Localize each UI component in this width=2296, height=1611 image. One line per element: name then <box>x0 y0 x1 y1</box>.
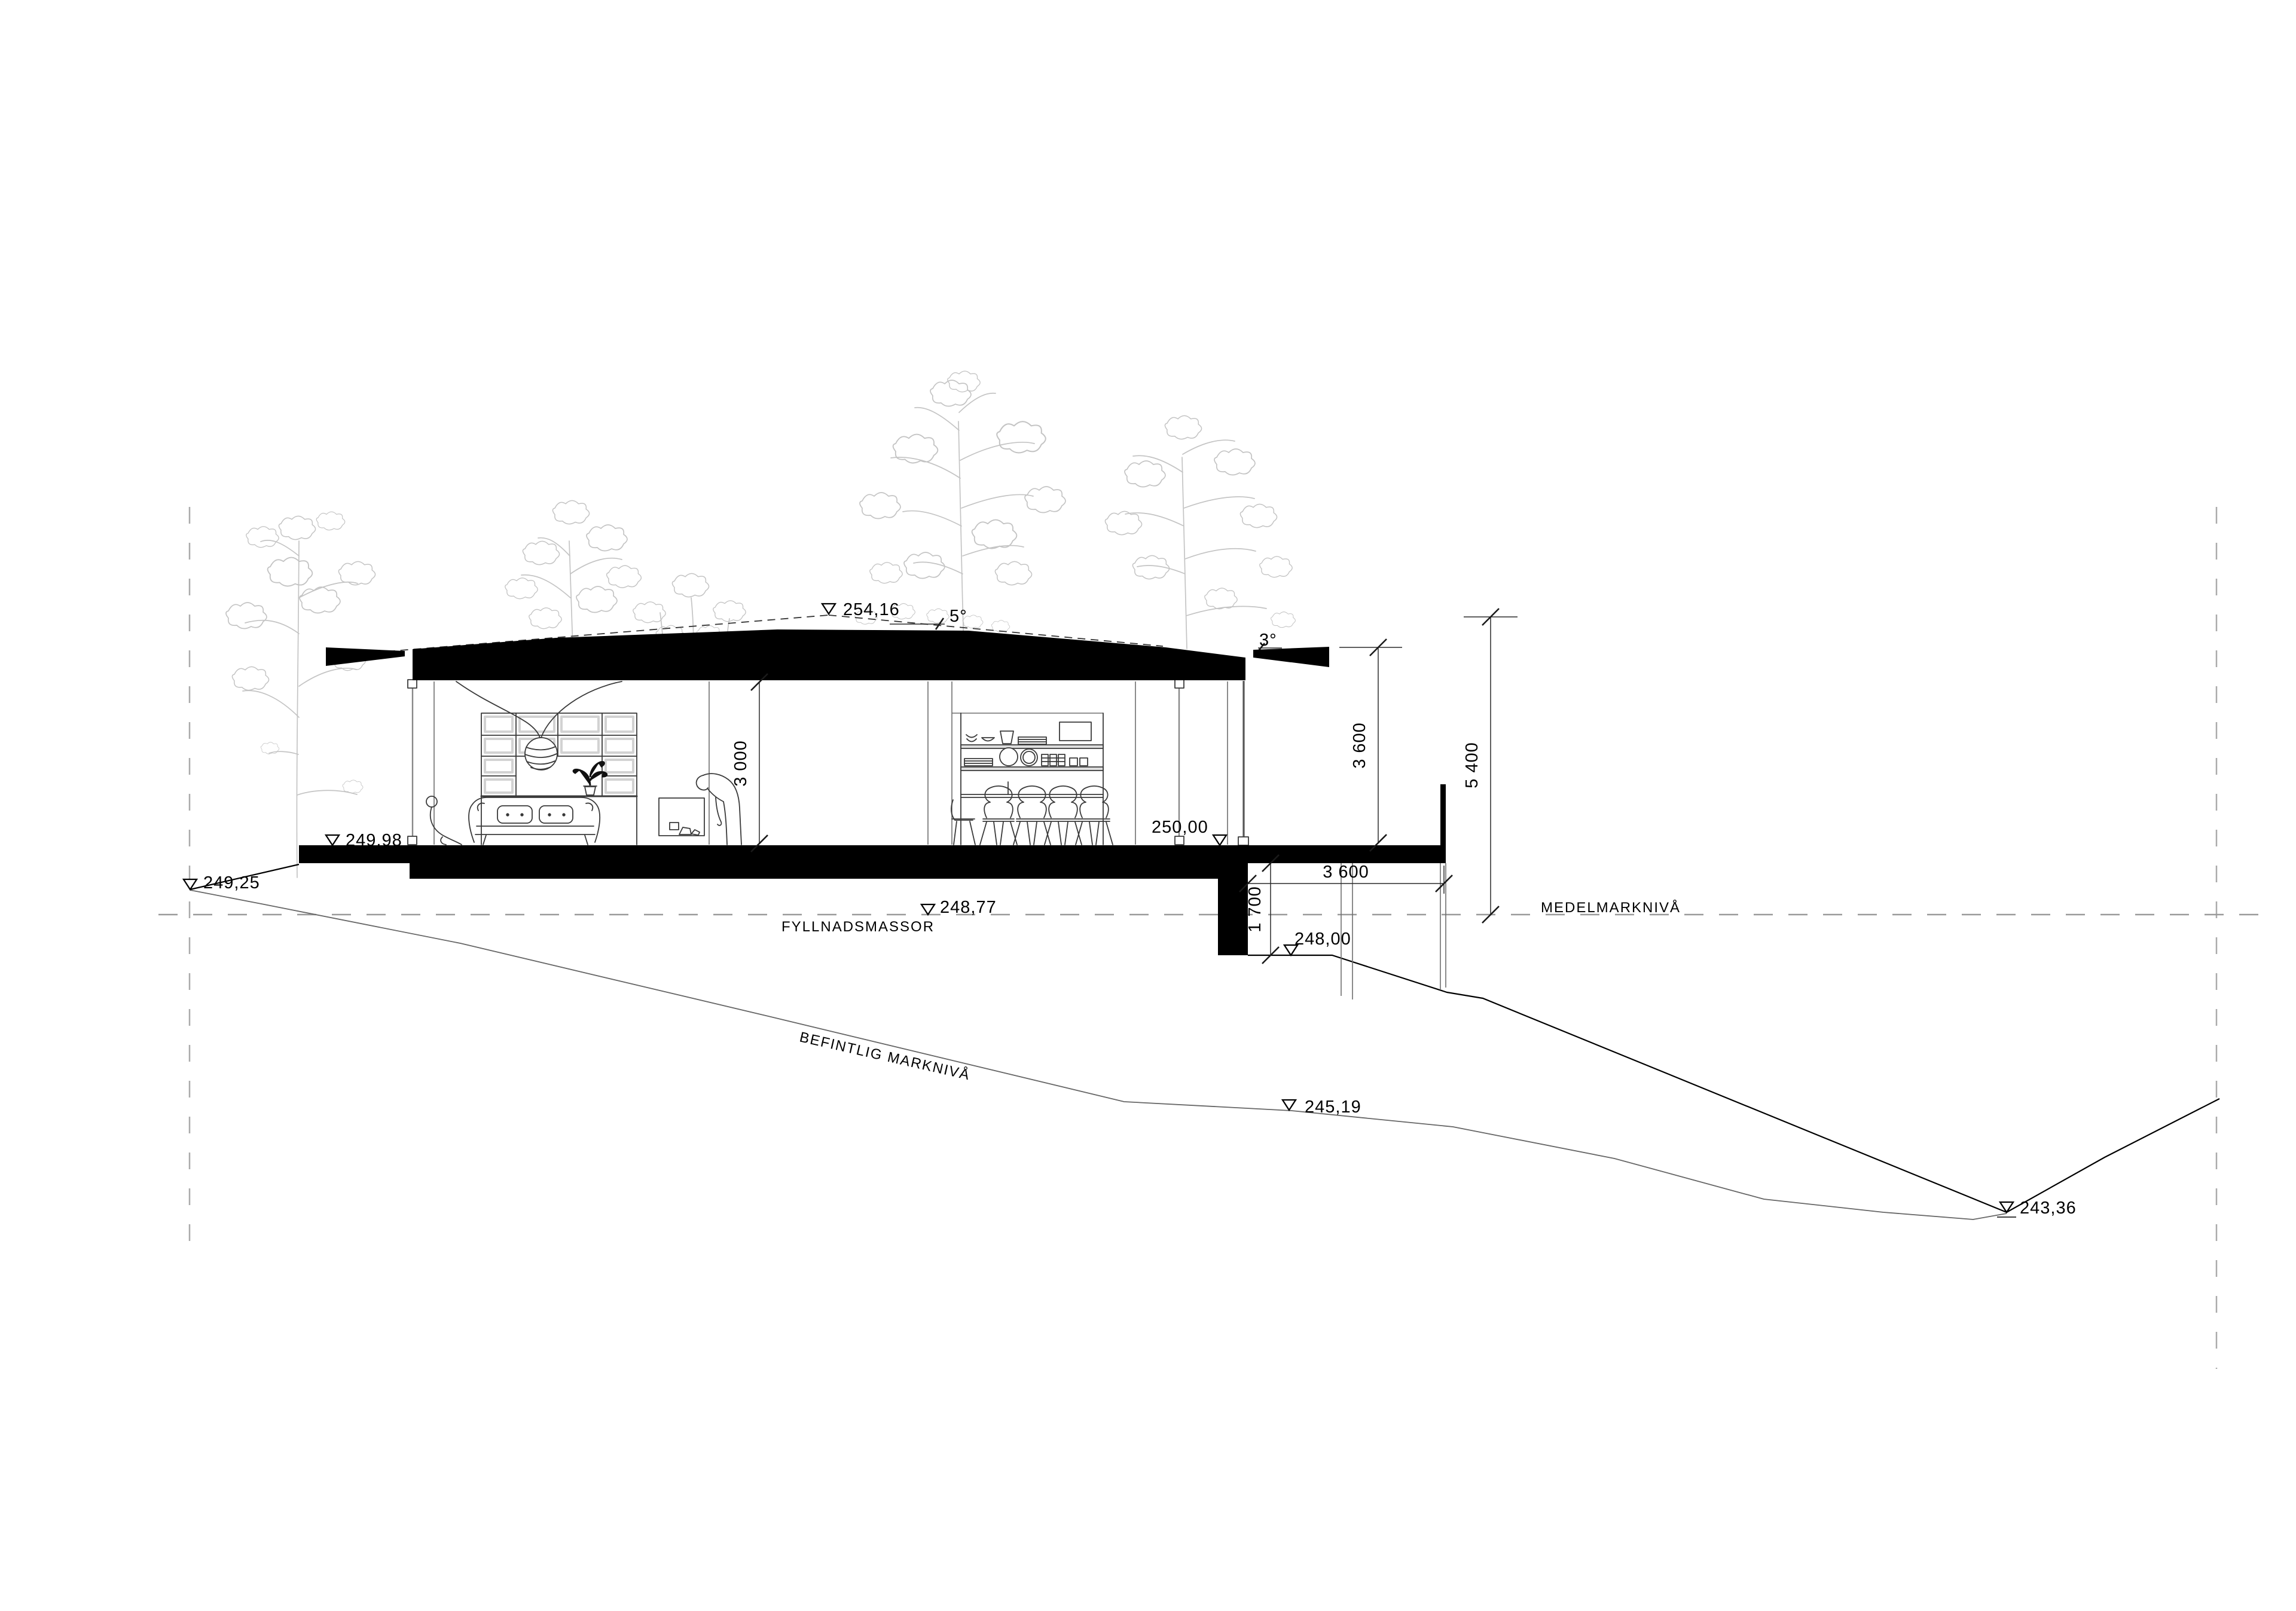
section-drawing-canvas: 3 000 3 600 5 400 3 600 1 700 254,16 5° … <box>0 0 2296 1611</box>
angle-main-roof: 5° <box>949 607 967 626</box>
level-low-point: 243,36 <box>2020 1199 2077 1218</box>
level-ground-below-deck: 248,00 <box>1294 930 1351 949</box>
tree-sketches <box>226 371 1295 878</box>
label-mean-ground: MEDELMARKNIVÅ <box>1541 899 1681 916</box>
level-marker-icon <box>822 604 835 614</box>
level-ground-west: 249,25 <box>203 873 260 892</box>
level-slope: 245,19 <box>1305 1098 1361 1117</box>
window-frame-icon <box>1175 836 1184 845</box>
window-frame-icon <box>408 680 417 688</box>
level-terrace: 249,98 <box>346 831 402 850</box>
tree-left <box>226 512 375 878</box>
glass-wall-west <box>408 680 417 845</box>
existing-ground-line <box>190 890 2007 1219</box>
dim-deck-height: 1 700 <box>1245 886 1265 933</box>
interior <box>408 680 1248 845</box>
eave-column <box>1238 681 1248 845</box>
level-marker-icon <box>1283 1100 1296 1110</box>
sofa <box>469 797 600 845</box>
label-existing-ground: BEFINTLIG MARKNIVÅ <box>798 1029 972 1084</box>
floor-footing <box>410 863 1248 879</box>
fireplace <box>659 798 704 836</box>
bookshelf <box>481 713 637 845</box>
section-cut-masses <box>299 629 1446 955</box>
level-floor: 250,00 <box>1152 818 1208 837</box>
dim-total-height: 5 400 <box>1463 742 1482 788</box>
level-peak: 254,16 <box>843 600 900 619</box>
label-fill-masses: FYLLNADSMASSOR <box>781 919 935 935</box>
level-marker-icon <box>921 904 935 915</box>
level-marker-icon <box>326 835 339 845</box>
roof-slab <box>413 629 1245 680</box>
level-mean-ground: 248,77 <box>940 898 997 917</box>
tree-mid-left <box>505 500 642 649</box>
roof-overhang-east <box>1253 647 1329 667</box>
regraded-slope-east <box>1248 955 2219 1212</box>
dining-chair <box>951 800 975 845</box>
angle-overhang-roof: 3° <box>1259 631 1277 650</box>
deck-railing-post <box>1440 784 1446 845</box>
floor-lamp <box>426 796 462 845</box>
house-section-svg: 3 000 3 600 5 400 3 600 1 700 254,16 5° … <box>0 0 2296 1611</box>
dim-deck-length: 3 600 <box>1323 863 1369 882</box>
tree-right <box>1105 415 1295 649</box>
dim-interior-height: 3 000 <box>731 740 750 787</box>
roof-overhang-west <box>326 647 405 666</box>
level-marker-icon <box>1213 835 1226 845</box>
dim-parapet-height: 3 600 <box>1350 722 1369 769</box>
foundation-wall <box>1218 863 1248 955</box>
window-frame-icon <box>1175 680 1184 688</box>
column-base-icon <box>1238 837 1248 845</box>
window-frame-icon <box>408 836 417 845</box>
